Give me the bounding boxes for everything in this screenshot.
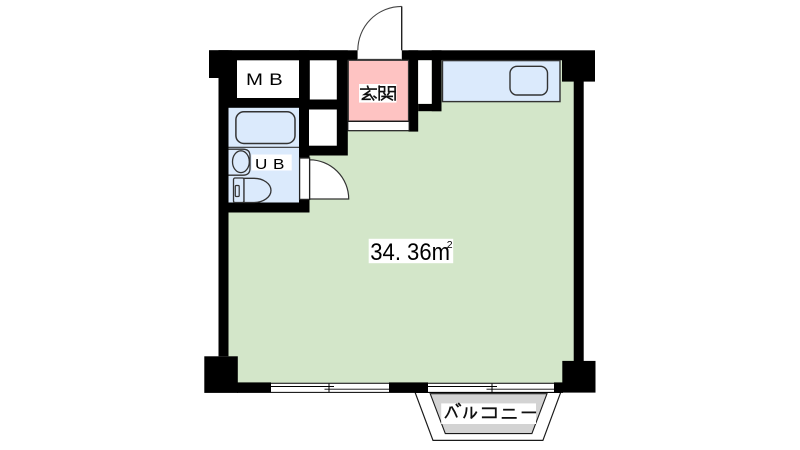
svg-text:2: 2 xyxy=(447,239,453,251)
svg-text:UB: UB xyxy=(255,157,290,173)
svg-text:34. 36m: 34. 36m xyxy=(370,238,450,265)
svg-text:MB: MB xyxy=(246,70,289,89)
